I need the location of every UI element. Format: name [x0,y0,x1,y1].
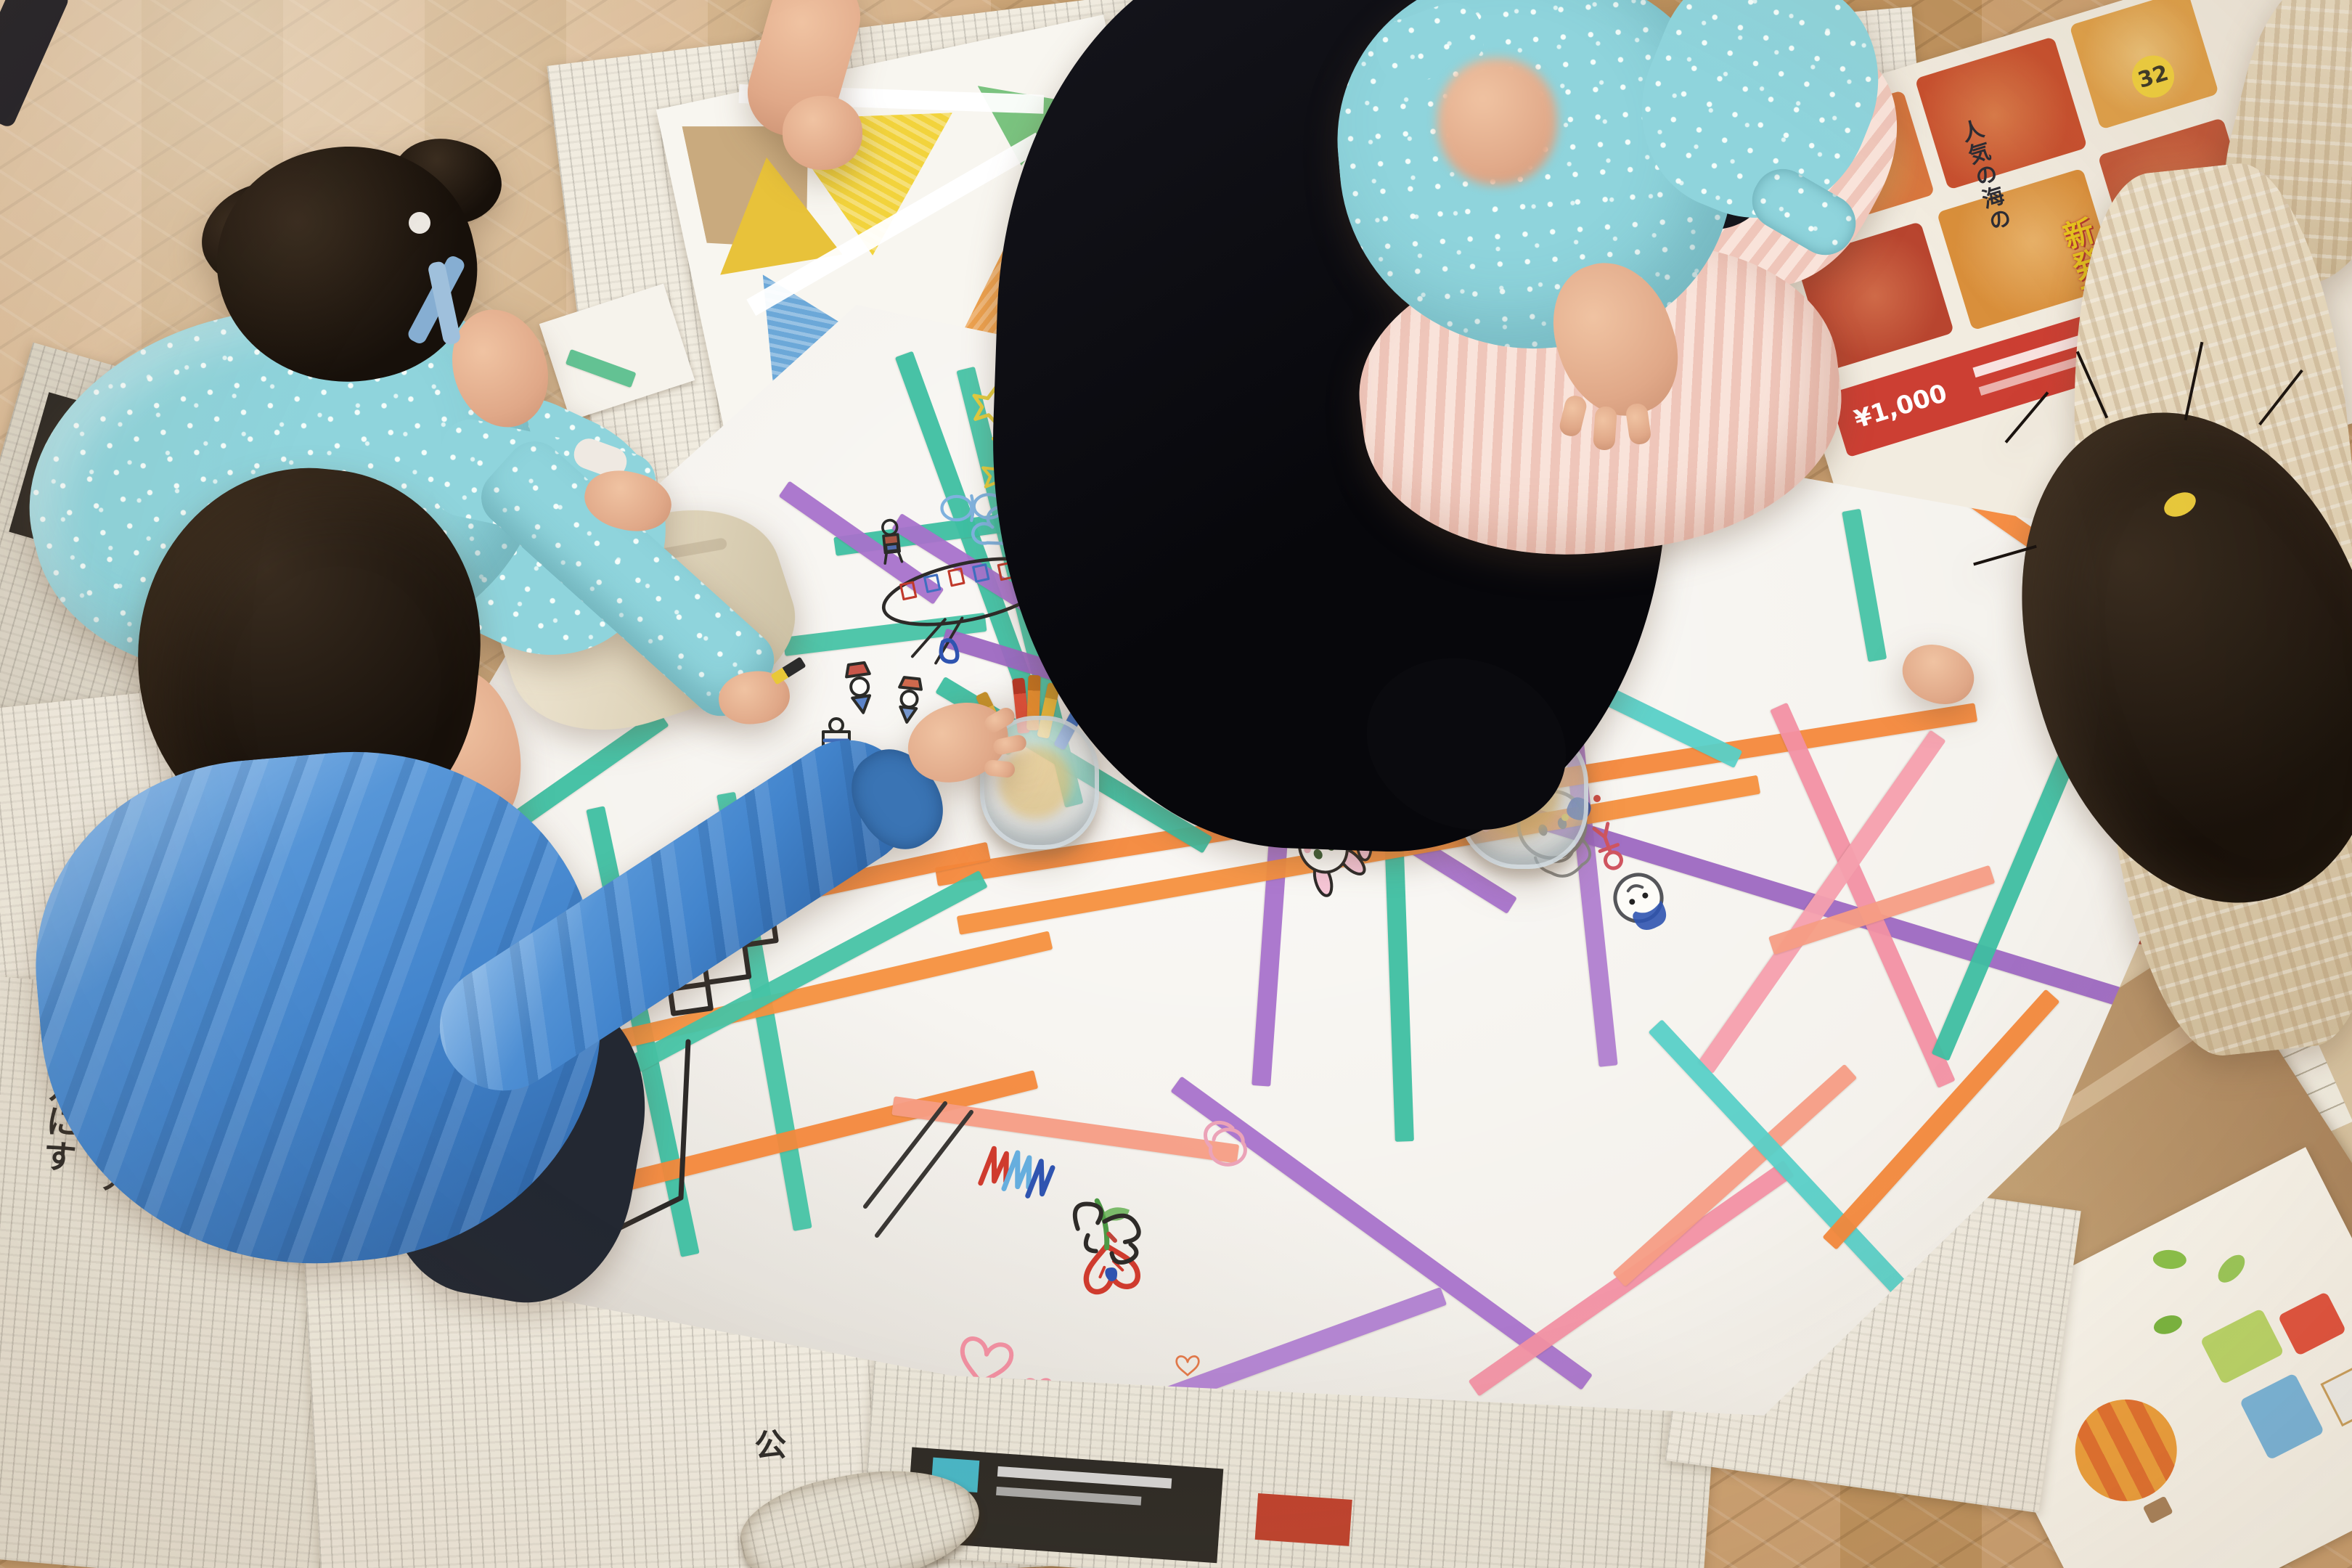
leaf-dot [2152,1312,2184,1338]
newspaper-text: 公 [749,1427,785,1462]
child-striped-pants [1307,0,1916,581]
adult-fist [783,96,862,170]
newspaper-photo [9,1357,211,1526]
child2-finger [1593,406,1617,451]
leaf-dot [2213,1250,2250,1287]
girl-hair-tie [409,212,430,234]
balloon-illustration [2058,1382,2194,1519]
ad-color-chip [996,1487,1141,1506]
ad-color-chip [997,1466,1172,1489]
hair-strand [2005,391,2049,444]
ad-badge-number: 32 [2135,60,2171,94]
leaf-dot [2152,1249,2186,1270]
child-beige-sweater [1851,145,2352,1234]
pink-round-scribble [1205,1122,1245,1164]
child2-fist-blurred [1437,58,1557,185]
balloon-basket [2143,1496,2173,1524]
photo-scene: 音が大 穴にす 公 7月11日 J×KDD ¥1,000 32 [0,0,2352,1568]
flyer-block [2278,1291,2347,1356]
child3-hand [1895,635,1983,713]
flyer-block [2200,1308,2284,1384]
house-icon [2320,1358,2352,1426]
flyer-block [2239,1373,2325,1461]
ad-red-block [1255,1493,1352,1546]
